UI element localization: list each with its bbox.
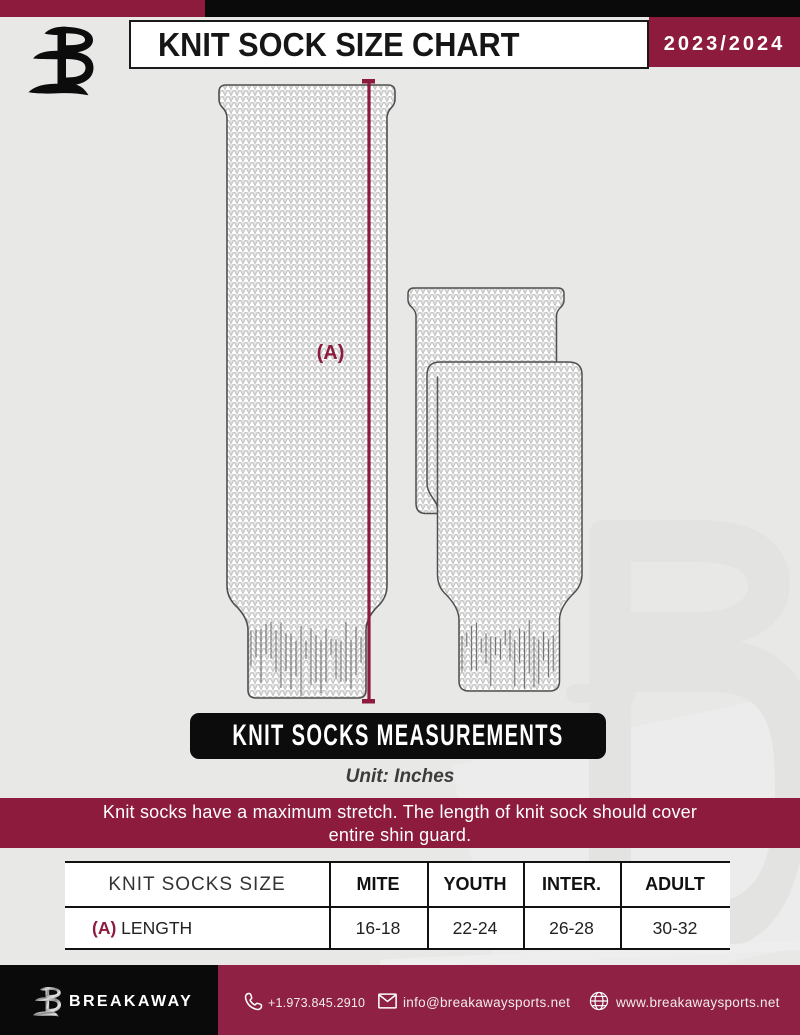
svg-text:(A): (A) <box>317 342 345 364</box>
